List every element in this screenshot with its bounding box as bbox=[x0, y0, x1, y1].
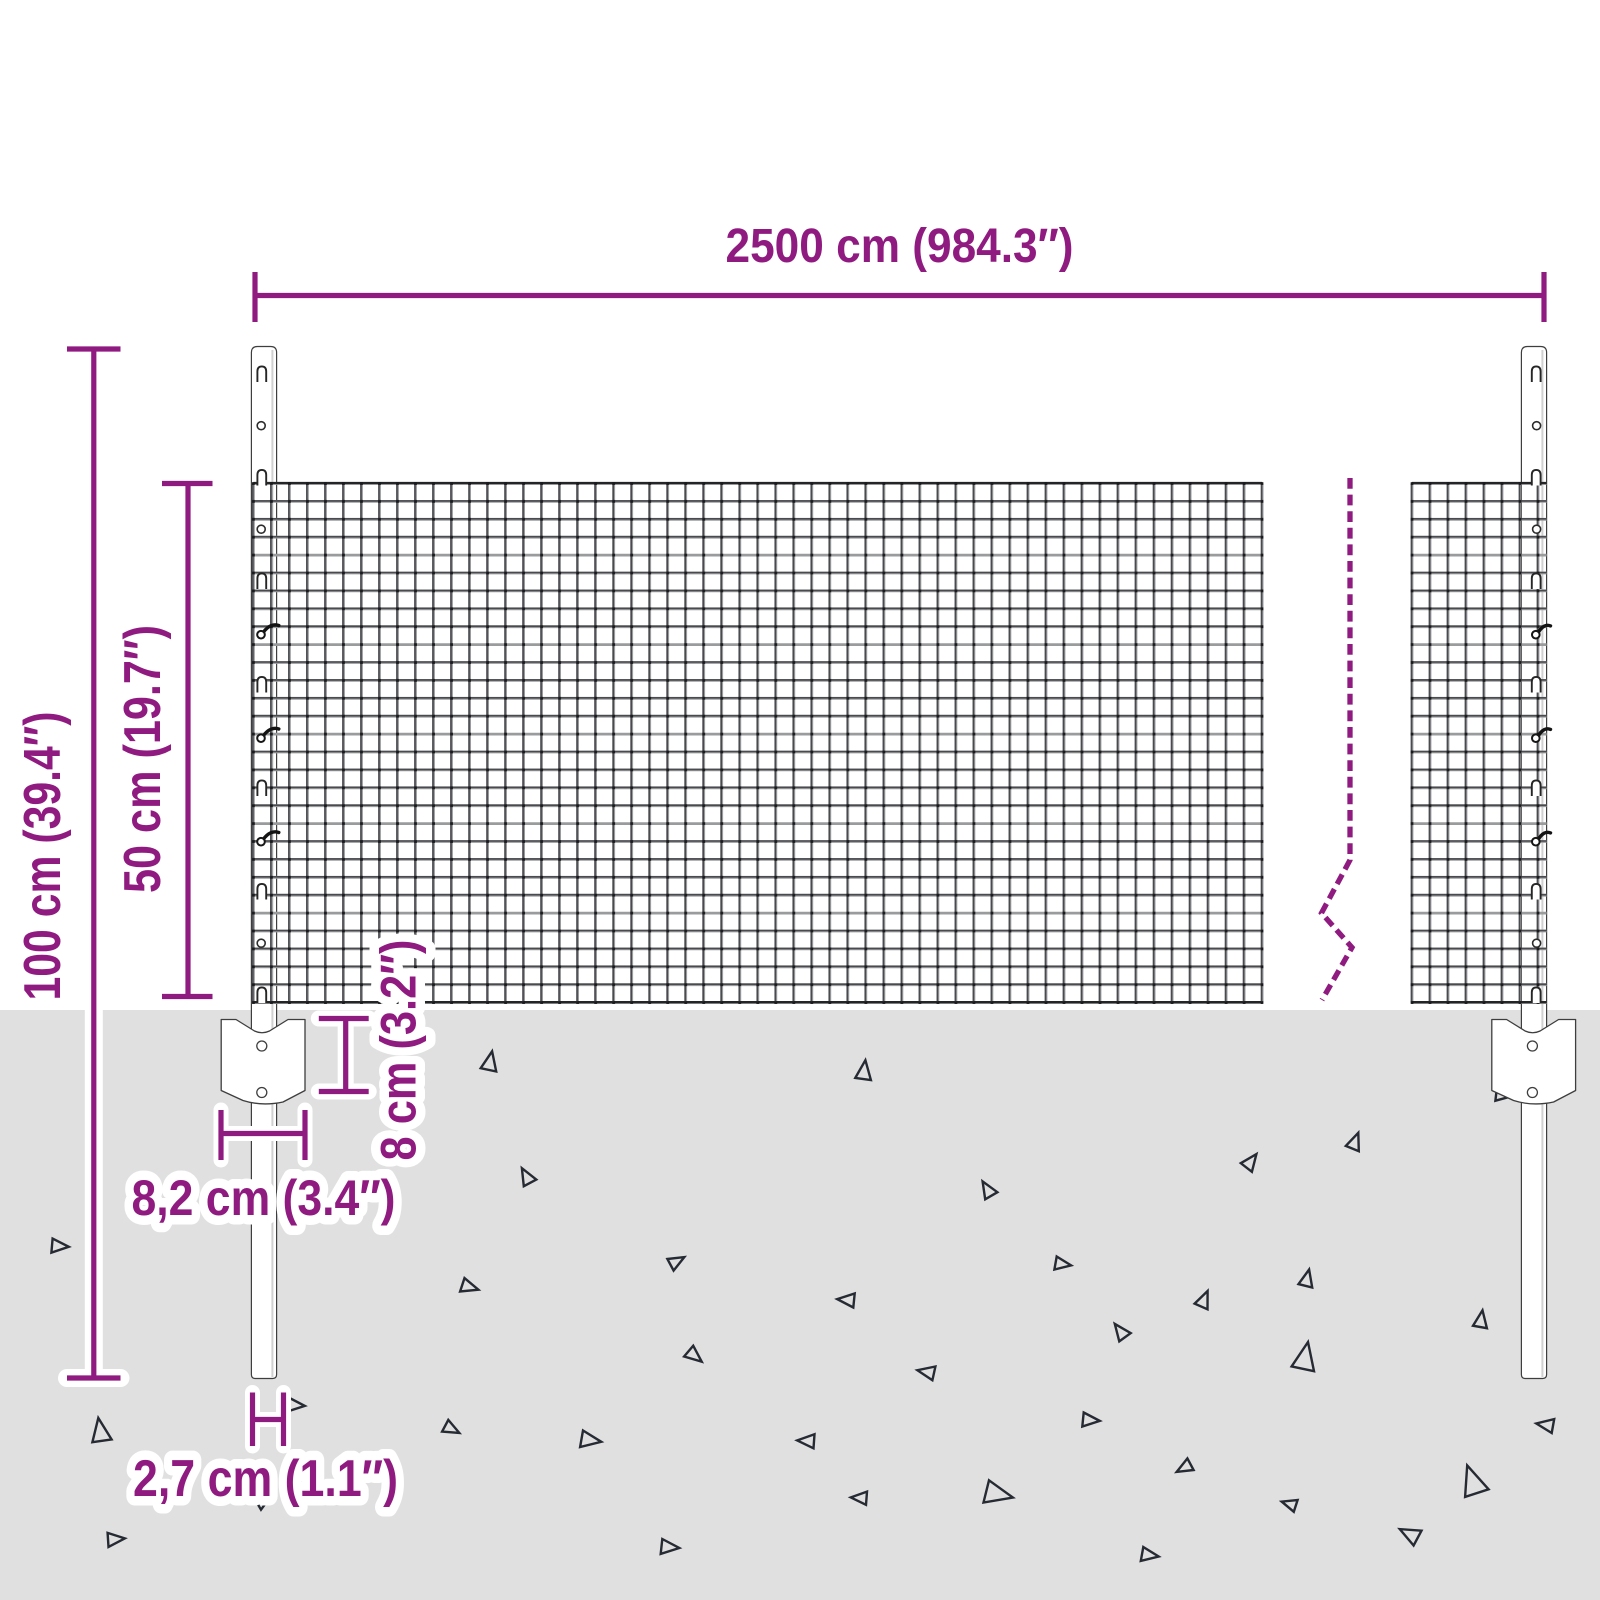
svg-text:2,7 cm (1.1″): 2,7 cm (1.1″) bbox=[133, 1450, 398, 1508]
svg-text:50 cm (19.7″): 50 cm (19.7″) bbox=[114, 625, 172, 893]
svg-text:100 cm (39.4″): 100 cm (39.4″) bbox=[14, 712, 72, 1001]
svg-text:2500 cm (984.3″): 2500 cm (984.3″) bbox=[726, 220, 1074, 273]
svg-text:8 cm (3.2″): 8 cm (3.2″) bbox=[371, 940, 427, 1161]
svg-text:8,2 cm (3.4″): 8,2 cm (3.4″) bbox=[132, 1170, 396, 1226]
